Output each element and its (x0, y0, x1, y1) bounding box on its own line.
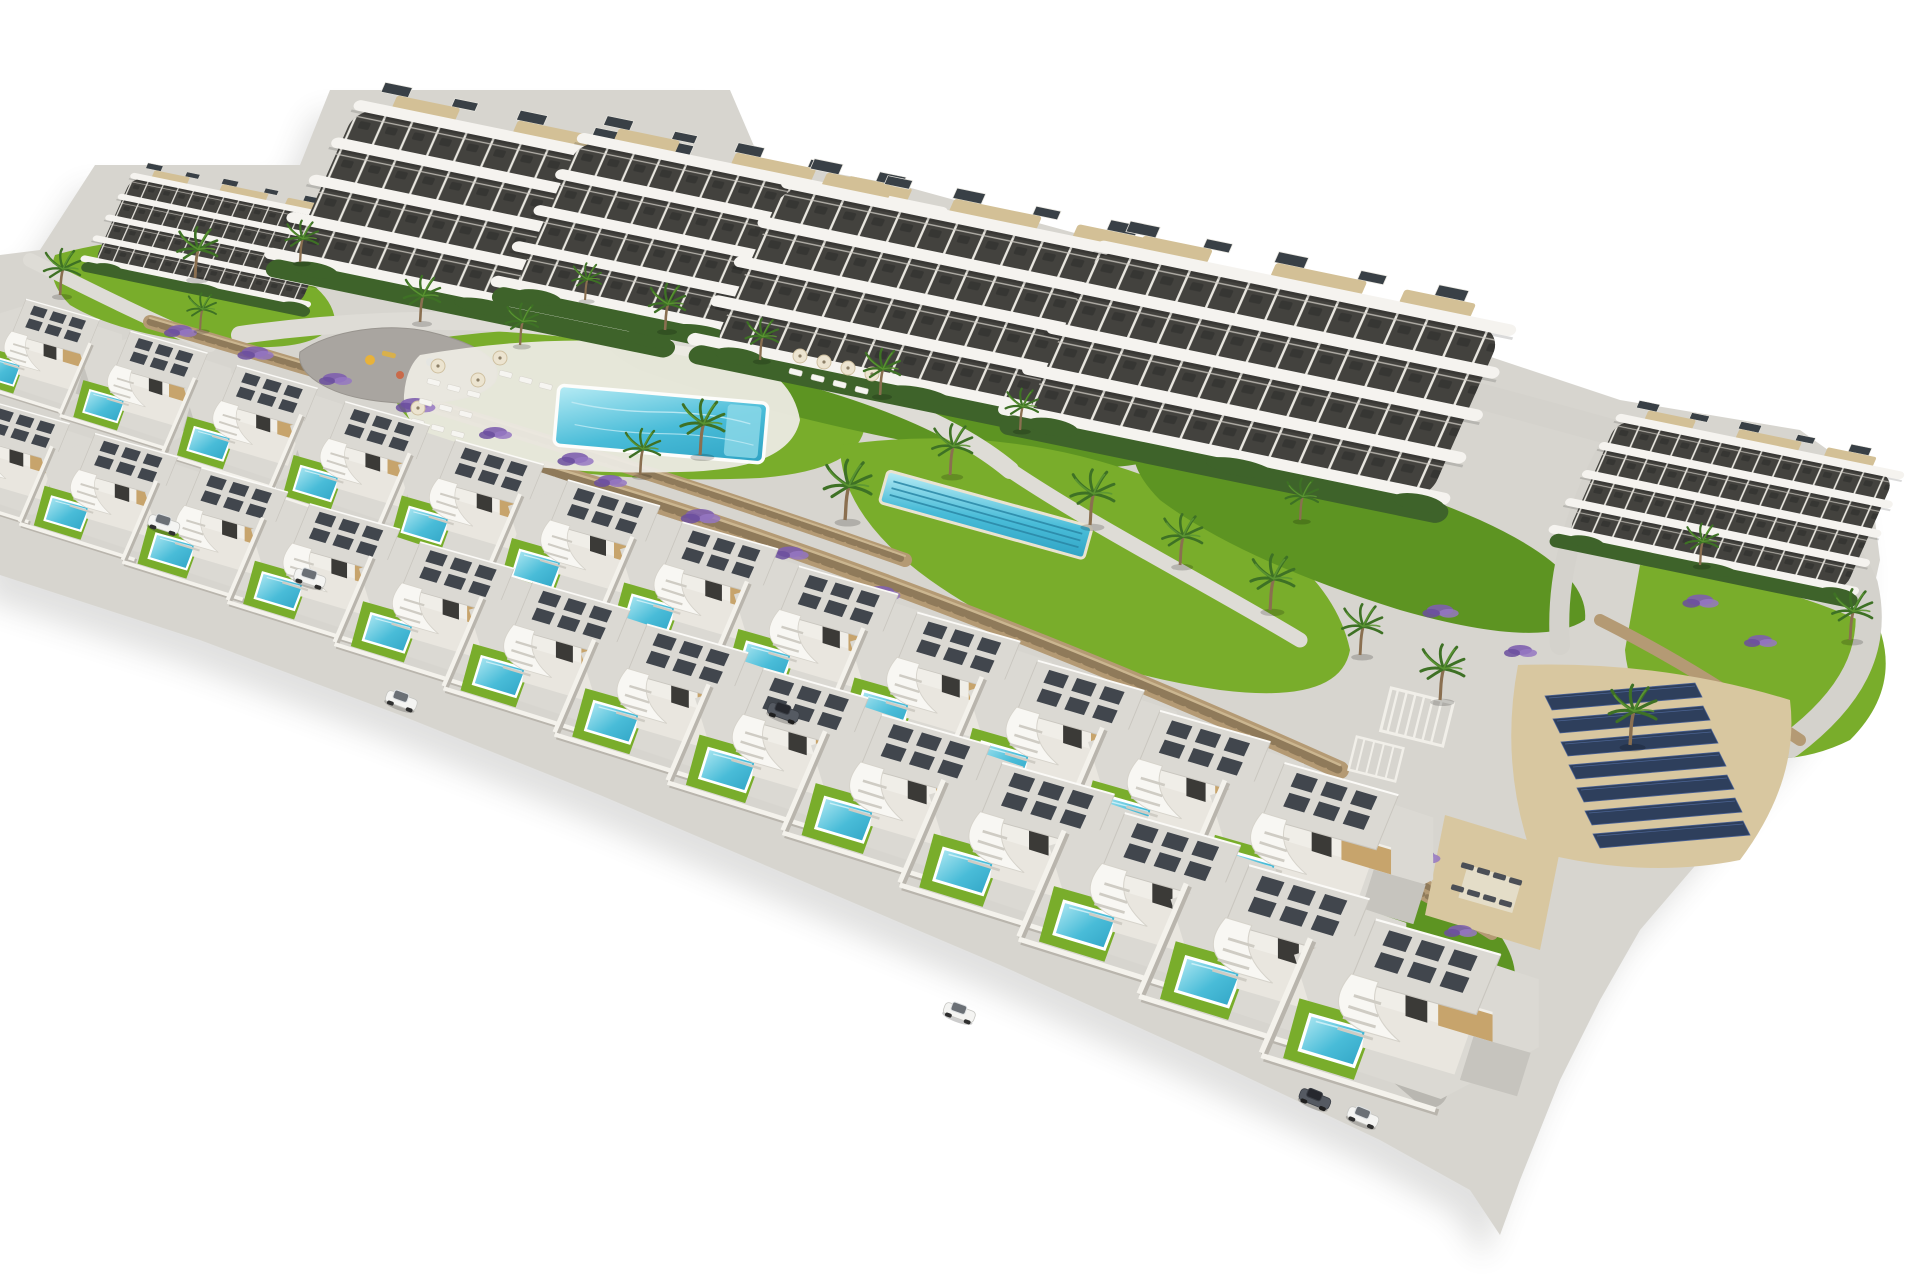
screenshot-root (0, 0, 1920, 1280)
parasol-6 (817, 355, 831, 369)
car-white-4 (941, 999, 978, 1028)
parasol-4 (493, 351, 507, 365)
main-pool-step (723, 404, 761, 459)
playground-equipment (396, 371, 404, 379)
parasol-2 (471, 373, 485, 387)
development-render (0, 0, 1920, 1280)
playground-equipment (365, 355, 375, 365)
parasol-1 (431, 359, 445, 373)
parasol-7 (841, 361, 855, 375)
parasol-5 (793, 349, 807, 363)
